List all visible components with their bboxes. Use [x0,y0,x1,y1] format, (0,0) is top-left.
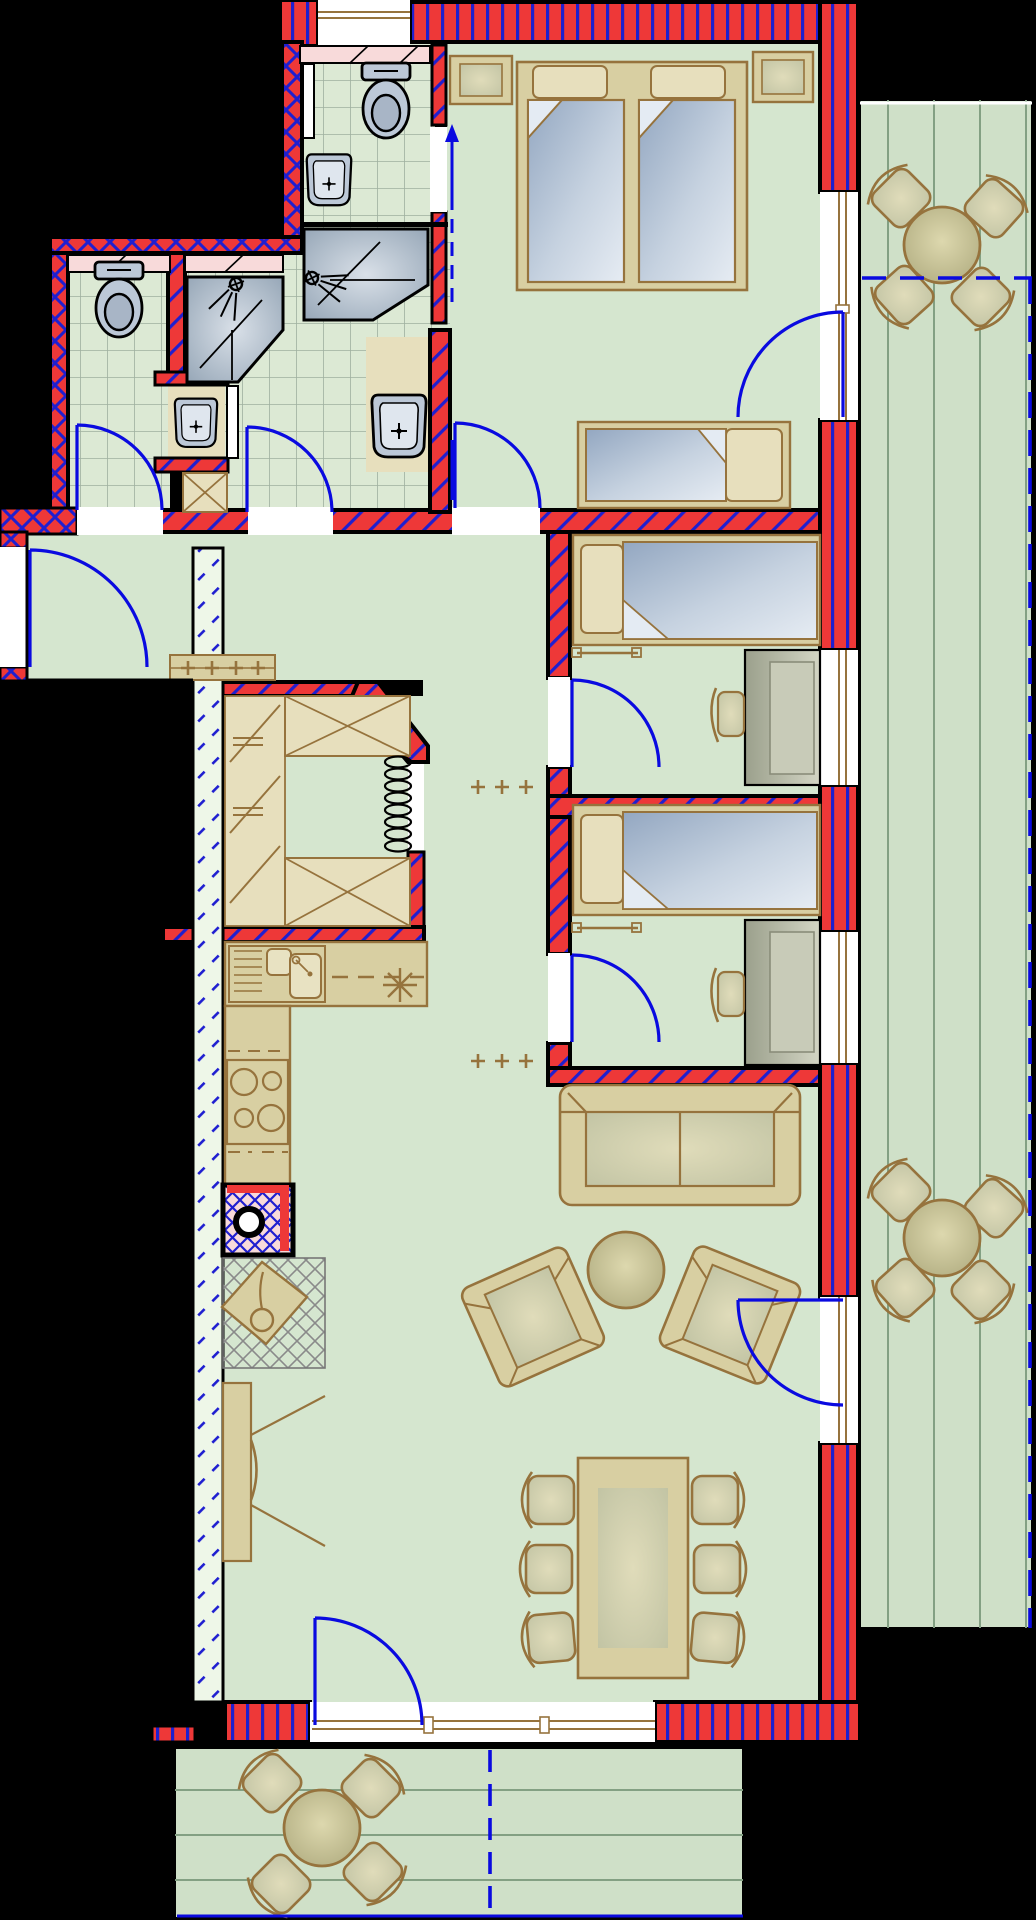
window-right-bedroom-3 [820,932,858,1063]
opening-bedroom-3 [548,953,570,1042]
kitchen-mat [222,1258,325,1368]
wall-right-2 [820,420,858,650]
wall-niche-bottom [155,458,228,472]
opening-shower-room [248,507,333,535]
dining-chair-2 [520,1541,572,1597]
wall-bed3-bottom [548,1068,820,1085]
wall-bottom-left-stub [152,1726,195,1742]
washbasin-right [372,395,426,457]
sofa [560,1085,800,1205]
closet-wardrobe-left [225,696,285,926]
toilet-left [95,262,143,337]
wall-top-left-pier [280,0,318,46]
dining-chair-5 [694,1541,746,1597]
coffee-table [588,1232,664,1308]
dining-table-center [598,1488,668,1648]
opening-ensuite [430,127,447,212]
wall-right-1 [820,2,858,192]
dining-chair-6 [690,1608,747,1668]
floor-hallway [27,532,548,680]
wall-entry-jamb-bottom [0,667,27,681]
mirror-panel [227,386,238,458]
wall-sanitary-top [50,237,302,253]
wall-insulated-left [193,548,223,1702]
wall-top-facade [410,2,860,42]
dishwasher-asterisk-icon [383,968,417,1002]
wall-thin-separator [302,222,448,227]
wall-connector-exterior [282,42,302,238]
wall-bed3-left-upper [548,817,570,954]
wall-right-4 [820,1063,858,1297]
wall-right-5 [820,1443,858,1743]
wall-sanitary-left [50,253,68,511]
chimney-flue [223,1185,293,1255]
dining-chair-4 [692,1472,744,1528]
dining-chair-3 [520,1608,577,1668]
closet-shelf-top [285,696,410,756]
window-top [318,0,410,46]
base-cabinet-x [183,473,227,512]
opening-entry-door [0,547,27,667]
window-door-right-living [820,1297,858,1443]
wall-hall-top-exterior-piece [0,508,77,534]
toilet-ensuite [362,63,410,138]
nightstand-right-top [762,60,804,94]
window-right-bedroom-2 [820,650,858,785]
kitchen-counter-side [225,1006,290,1185]
opening-hall [452,507,540,535]
single-bed-master [578,422,790,508]
wall-bottom-right [655,1702,860,1742]
wall-entry-jamb-top [0,532,27,548]
floor-passage [423,680,548,1085]
wall-ensuite-right-lower [432,212,446,323]
dining-chair-1 [522,1472,574,1528]
wall-bed2-left-upper [548,532,570,678]
nightstand-left-top [460,64,502,96]
floor-balcony-right [860,100,1032,1628]
wall-bottom-left [225,1702,310,1742]
opening-wc-left [77,507,163,535]
window-band-bottom-living [310,1702,655,1742]
double-bed-master [517,62,747,290]
floor-plan-canvas [0,0,1036,1920]
window-right-bedroom-master [820,192,858,420]
opening-bedroom-2 [548,677,570,767]
wall-shower-room-right [430,330,450,512]
wall-right-3 [820,785,858,932]
wall-ensuite-right-upper [432,45,446,125]
floor-plan-page [0,0,1036,1920]
closet-shelf-bottom [285,858,410,926]
cabinet-ensuite [303,64,314,138]
washbasin-ensuite [307,154,351,205]
washbasin-middle [175,399,217,447]
